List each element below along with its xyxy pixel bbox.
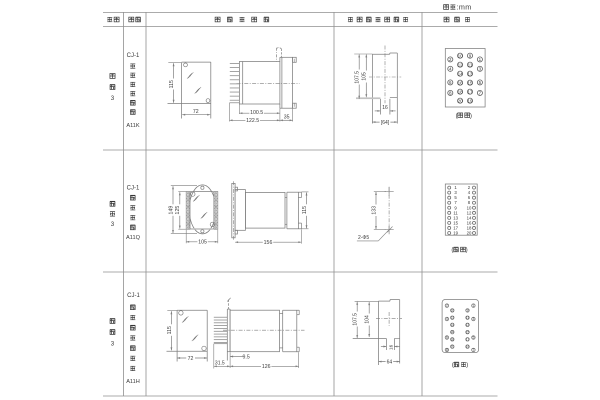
svg-text:20: 20 — [458, 98, 464, 103]
svg-text:16: 16 — [450, 330, 454, 334]
svg-text:122.5: 122.5 — [246, 118, 259, 124]
svg-text:35: 35 — [284, 115, 290, 121]
svg-text:8: 8 — [446, 348, 448, 352]
svg-text:149: 149 — [168, 206, 174, 215]
svg-text:3: 3 — [111, 341, 115, 348]
svg-text:11: 11 — [466, 316, 470, 320]
svg-text:3: 3 — [111, 95, 115, 102]
svg-text:14: 14 — [450, 323, 454, 327]
svg-text:18: 18 — [450, 337, 454, 341]
svg-text:126: 126 — [262, 364, 271, 370]
svg-text:): ) — [470, 112, 472, 119]
svg-text:20: 20 — [450, 345, 454, 349]
svg-text:107.5: 107.5 — [355, 71, 361, 84]
svg-text:15: 15 — [467, 80, 473, 85]
svg-text:5: 5 — [472, 336, 474, 340]
svg-text:100.5: 100.5 — [250, 110, 263, 116]
svg-text:104: 104 — [365, 315, 371, 324]
svg-text:4: 4 — [446, 317, 448, 321]
svg-text:2: 2 — [446, 304, 448, 308]
svg-text:CJ-1: CJ-1 — [127, 293, 140, 299]
svg-text:9: 9 — [467, 309, 469, 313]
svg-text:105: 105 — [362, 72, 368, 81]
svg-text:CJ-1: CJ-1 — [127, 53, 140, 59]
svg-text:11: 11 — [468, 62, 473, 67]
svg-text:): ) — [466, 247, 468, 254]
svg-text:A11H: A11H — [126, 379, 140, 385]
svg-text:18: 18 — [458, 89, 464, 94]
svg-text:[64]: [64] — [381, 120, 390, 126]
svg-text:3: 3 — [472, 317, 474, 321]
svg-text:CJ-1: CJ-1 — [127, 186, 140, 192]
svg-text:16: 16 — [382, 105, 388, 111]
svg-text:16: 16 — [458, 80, 464, 85]
svg-text:10: 10 — [450, 309, 454, 313]
svg-text:A11K: A11K — [126, 123, 140, 129]
svg-text:72: 72 — [193, 109, 199, 115]
svg-text:115: 115 — [169, 80, 175, 88]
svg-text:12: 12 — [458, 62, 464, 67]
svg-text:): ) — [466, 362, 468, 369]
svg-text:17: 17 — [466, 338, 470, 342]
svg-text:115: 115 — [167, 326, 173, 334]
svg-text:115: 115 — [302, 206, 308, 214]
svg-text:16: 16 — [388, 344, 393, 350]
svg-text:14: 14 — [458, 71, 464, 76]
svg-text:19: 19 — [466, 345, 470, 349]
svg-text:133: 133 — [371, 206, 377, 215]
svg-text:9.5: 9.5 — [243, 355, 250, 361]
svg-text:10: 10 — [458, 53, 464, 58]
svg-text:2-Φ5: 2-Φ5 — [358, 235, 369, 241]
svg-text:31.5: 31.5 — [215, 360, 225, 366]
svg-text:20: 20 — [467, 231, 472, 236]
svg-text:72: 72 — [188, 356, 194, 362]
svg-text:6: 6 — [446, 336, 448, 340]
svg-text:105: 105 — [198, 240, 207, 246]
svg-text:1: 1 — [472, 304, 474, 308]
svg-text:13: 13 — [467, 71, 473, 76]
svg-text:19: 19 — [467, 98, 473, 103]
svg-text:17: 17 — [467, 89, 473, 94]
svg-text:156: 156 — [264, 240, 273, 246]
svg-text:12: 12 — [450, 316, 454, 320]
svg-text:7: 7 — [472, 348, 474, 352]
svg-text:64: 64 — [387, 359, 393, 365]
svg-text:19: 19 — [453, 231, 458, 236]
svg-text:107.5: 107.5 — [353, 313, 359, 326]
svg-text::mm: :mm — [457, 3, 472, 12]
svg-text:A11Q: A11Q — [126, 235, 141, 241]
svg-text:15: 15 — [466, 330, 470, 334]
svg-text:13: 13 — [466, 323, 470, 327]
svg-text:3: 3 — [111, 221, 115, 228]
svg-text:125: 125 — [175, 206, 181, 215]
